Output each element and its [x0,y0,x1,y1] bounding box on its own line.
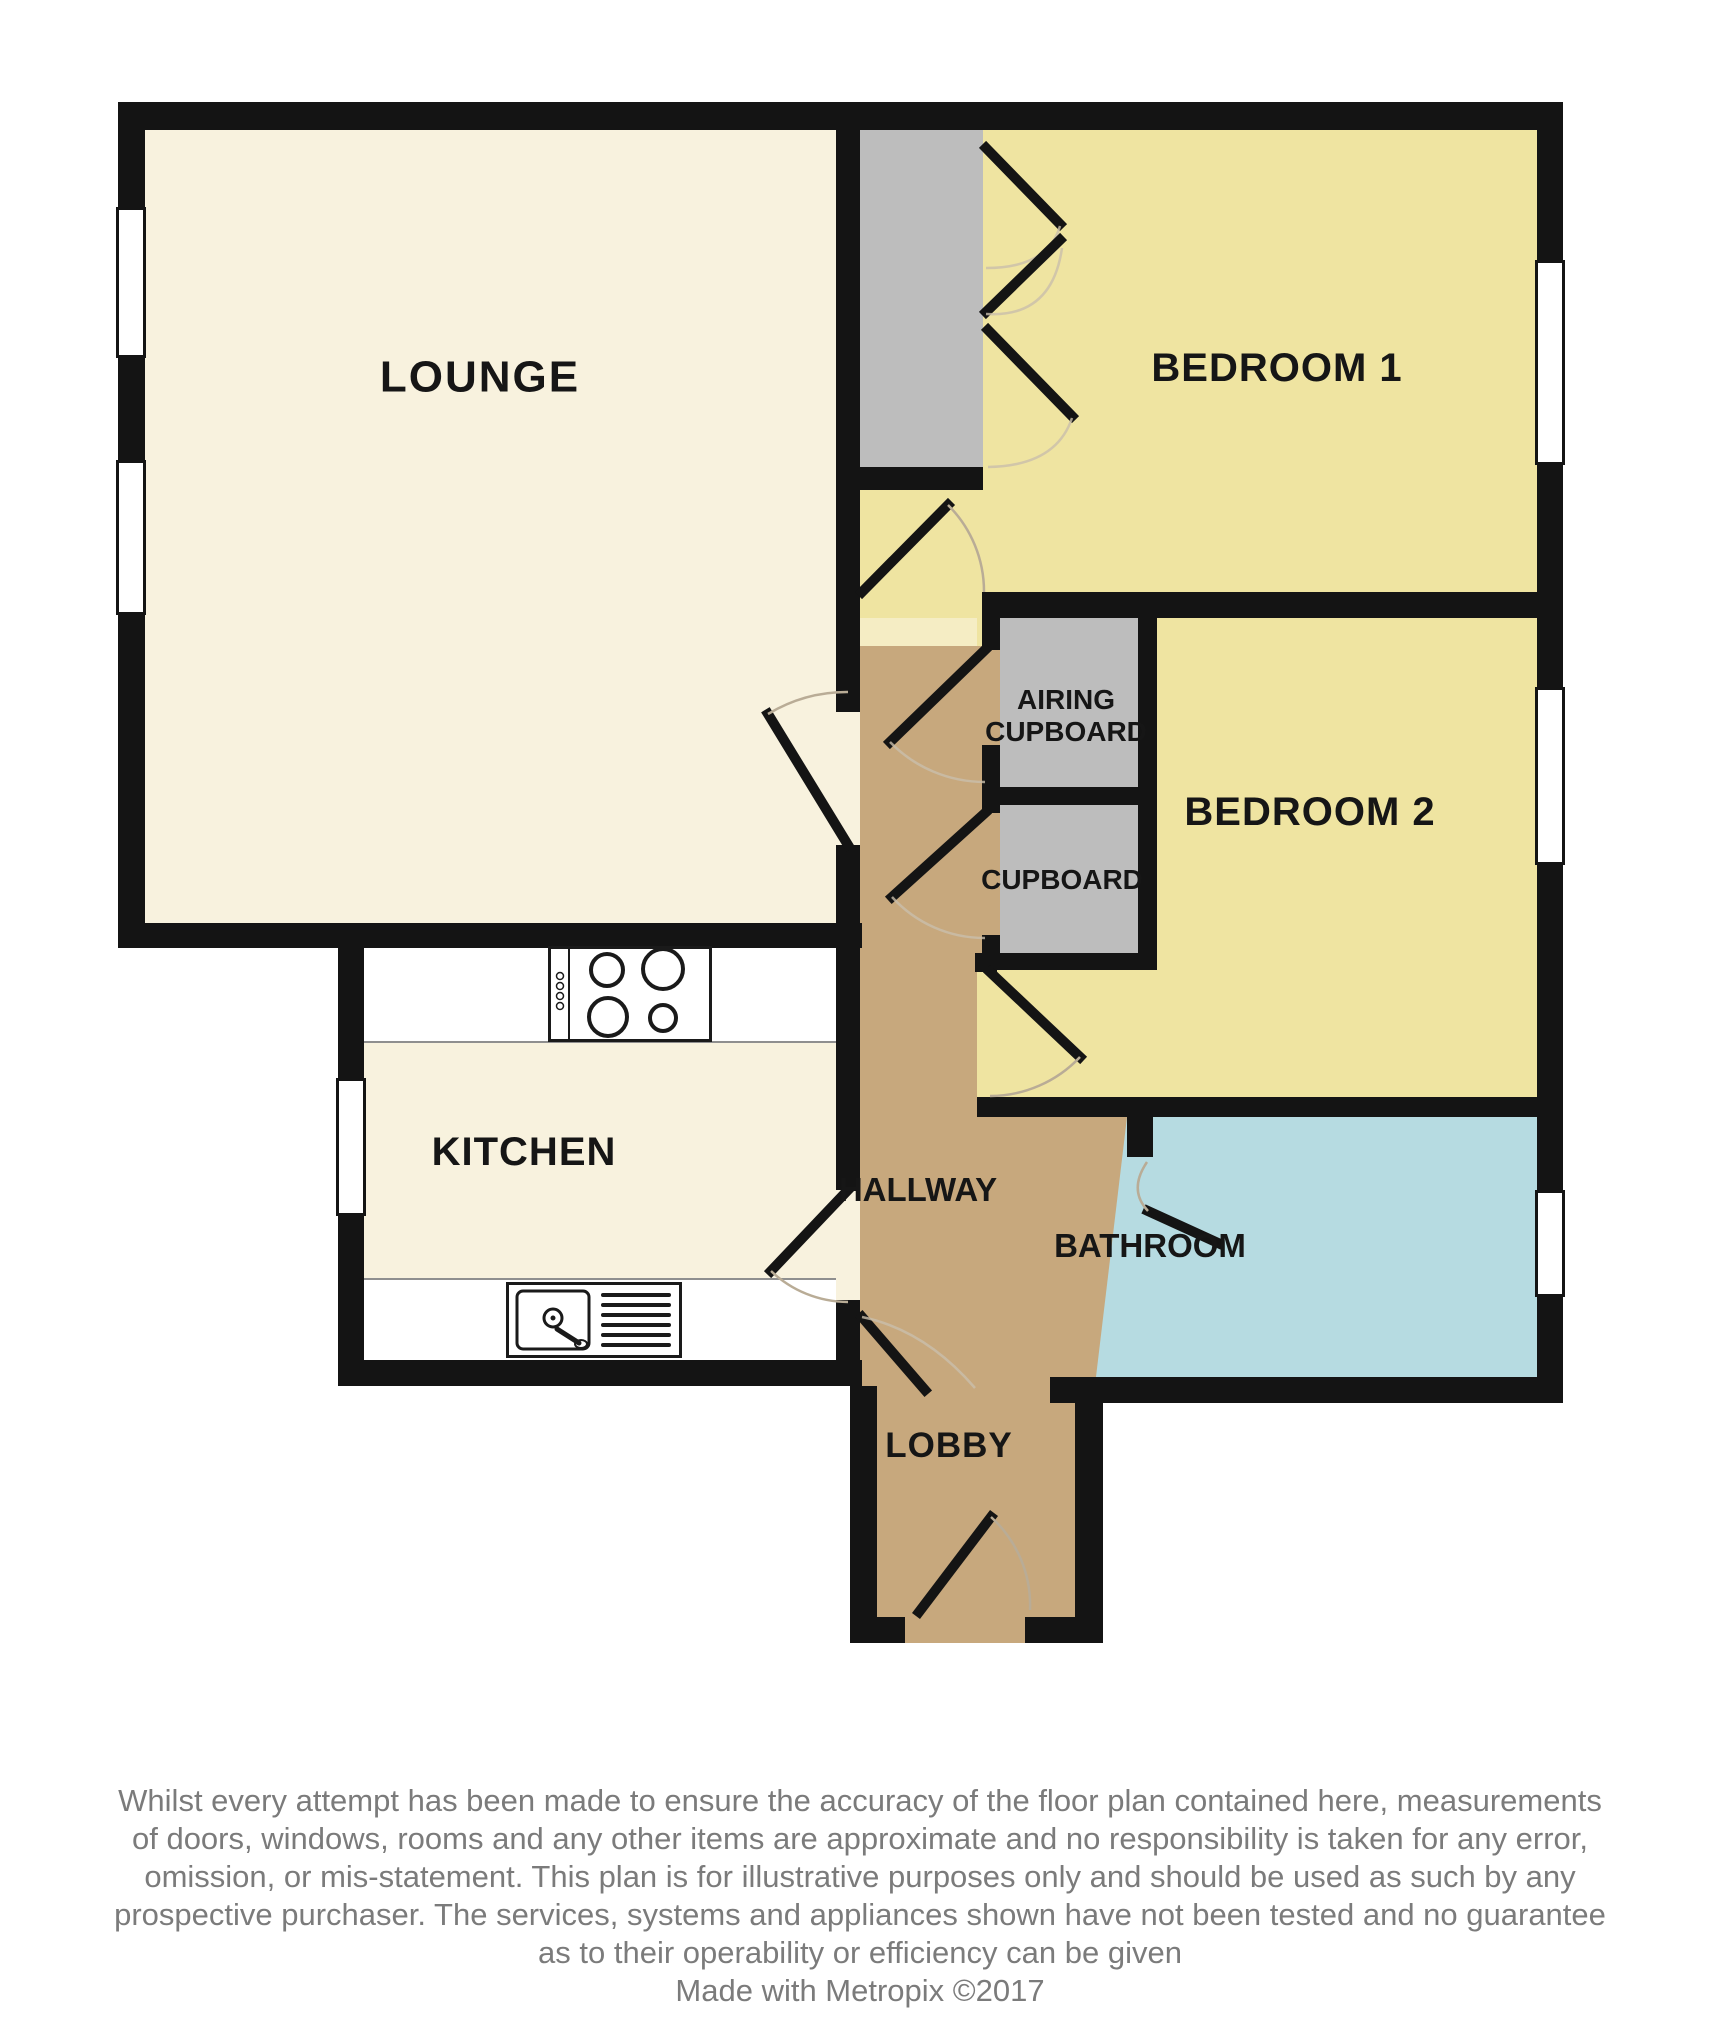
disclaimer-line: Whilst every attempt has been made to en… [50,1782,1670,1820]
airing-line2: CUPBOARD [985,716,1147,748]
footer-credit: Made with Metropix ©2017 [50,1972,1670,2010]
wall [836,948,860,1190]
window [1535,687,1565,865]
window [116,207,146,358]
wall [982,935,1000,953]
sink-icon [506,1282,682,1358]
bedroom1-doorway [860,618,982,648]
wall [982,787,1157,805]
wall [982,618,1000,650]
wall [836,845,860,948]
wall [977,1097,1563,1117]
disclaimer-line: prospective purchaser. The services, sys… [50,1896,1670,1934]
wall [118,923,862,948]
wall [975,953,997,972]
room-hallway-mid [860,953,977,1117]
room-lounge [145,130,836,923]
disclaimer-line: as to their operability or efficiency ca… [50,1934,1670,1972]
airing-line1: AIRING [985,684,1147,716]
wall [836,102,860,712]
room-lobby [862,1377,1075,1617]
wall [1537,465,1563,687]
room-label-hallway: HALLWAY [839,1171,997,1209]
room-label-lobby: LOBBY [885,1426,1013,1466]
wall [982,592,1563,618]
stove-icon [548,946,712,1042]
lounge-door-threshold [836,712,860,845]
room-label-airing-cupboard: AIRING CUPBOARD [985,684,1147,748]
window [1535,1190,1565,1297]
wall [850,1617,905,1643]
room-hallway-upper [860,646,982,953]
room-label-bedroom2: BEDROOM 2 [1184,789,1435,835]
wall [1537,865,1563,1190]
disclaimer: Whilst every attempt has been made to en… [50,1782,1670,2010]
wall [836,467,983,490]
room-label-lounge: LOUNGE [380,353,580,404]
wall [1075,1377,1103,1643]
wall [1537,102,1563,260]
wall [1127,1113,1153,1157]
floor-plan: LOUNGE BEDROOM 1 BEDROOM 2 KITCHEN HALLW… [0,0,1717,2025]
room-label-cupboard: CUPBOARD [981,864,1143,896]
disclaimer-line: omission, or mis-statement. This plan is… [50,1858,1670,1896]
room-label-bedroom1: BEDROOM 1 [1151,345,1402,391]
wall [1050,1377,1563,1403]
wall [850,1386,877,1643]
wall [982,953,1157,970]
wall [1025,1617,1103,1643]
lobby-door-threshold [905,1617,1025,1643]
window [1535,260,1565,465]
window [336,1078,366,1216]
window [116,460,146,615]
disclaimer-line: of doors, windows, rooms and any other i… [50,1820,1670,1858]
room-label-kitchen: KITCHEN [432,1129,617,1175]
wall [338,1360,862,1386]
wall [1138,618,1157,970]
wardrobe-cupboard [857,130,983,467]
room-label-bathroom: BATHROOM [1054,1227,1246,1265]
